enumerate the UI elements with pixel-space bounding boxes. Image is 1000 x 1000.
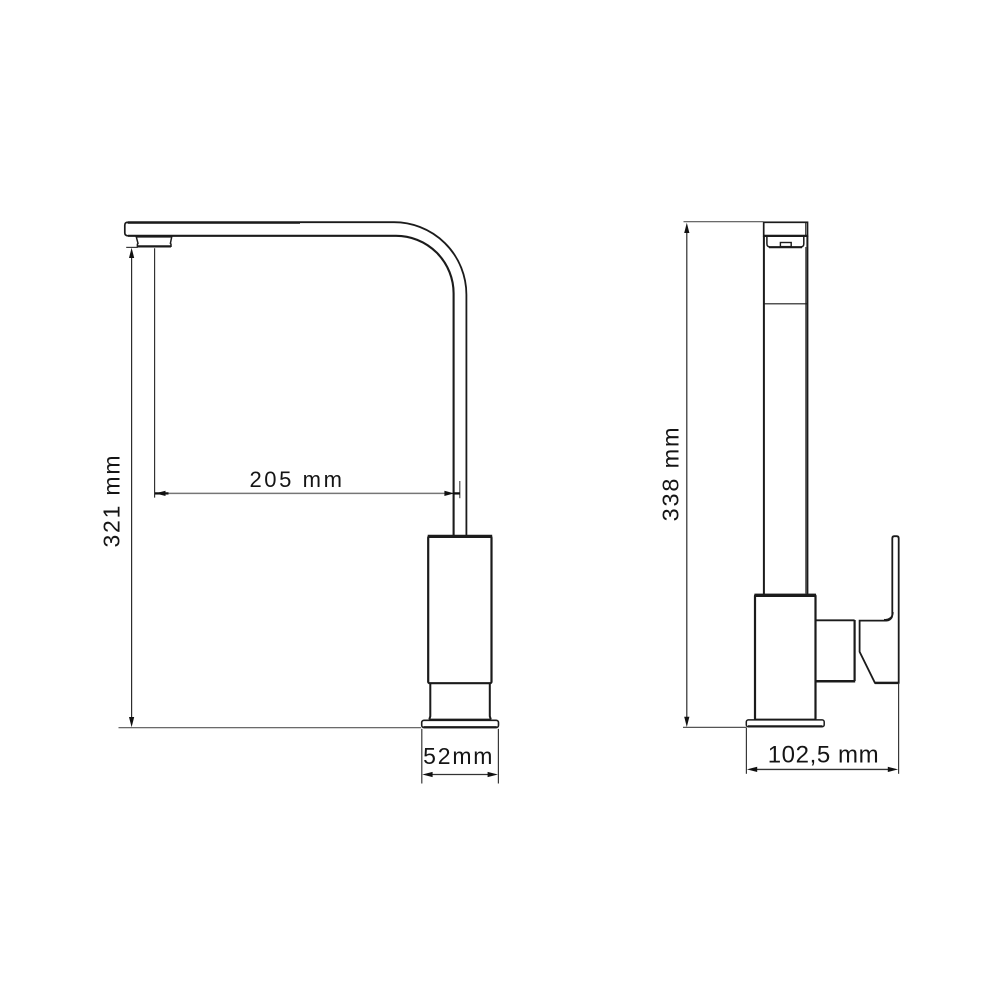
svg-text:102,5 mm: 102,5 mm	[768, 741, 880, 768]
svg-text:52mm: 52mm	[423, 743, 494, 769]
svg-text:205 mm: 205 mm	[249, 467, 344, 492]
svg-text:321 mm: 321 mm	[99, 454, 125, 548]
svg-text:338 mm: 338 mm	[658, 426, 684, 522]
